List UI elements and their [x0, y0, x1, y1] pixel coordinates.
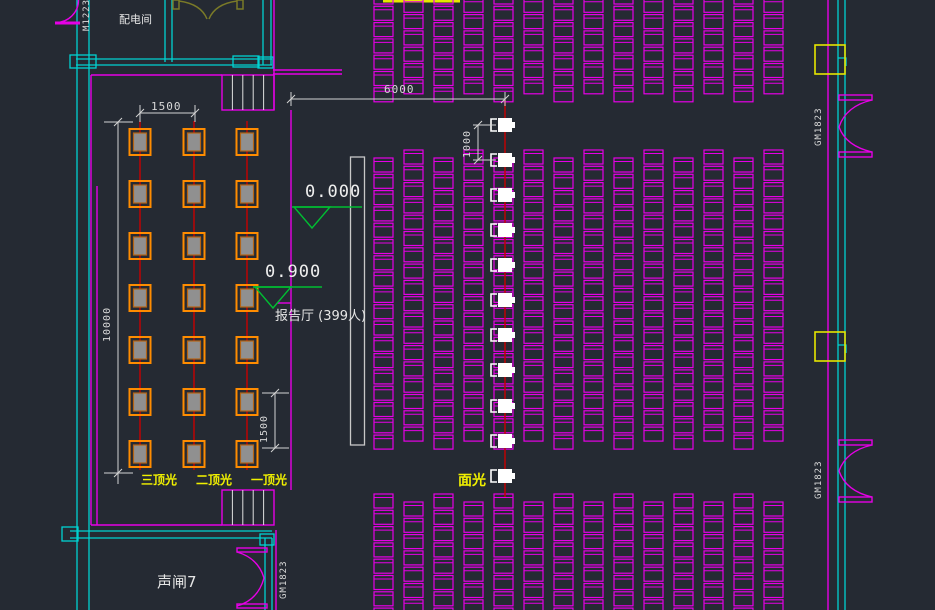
door-tag-gm1823-soundlock: GM1823 [280, 560, 289, 599]
top-light-1-label: 一顶光 [251, 474, 287, 486]
dim-6000: 6000 [384, 84, 415, 95]
sound-lock-label: 声闸7 [157, 575, 197, 590]
power-room-door [173, 0, 243, 19]
top-light-3-label: 三顶光 [141, 474, 177, 486]
stage-top-lights [130, 121, 258, 470]
elevation-markers [253, 207, 362, 308]
dim-1500-top: 1500 [151, 101, 182, 112]
front-light-label: 面光 [458, 474, 486, 488]
door-tag-gm1823-bottom: GM1823 [815, 460, 824, 499]
elevation-0000: 0.000 [305, 184, 361, 201]
elevation-0900: 0.900 [265, 264, 321, 281]
door-tag-gm1823-top: GM1823 [815, 107, 824, 146]
dim-1500-right: 1500 [260, 415, 270, 443]
dim-1000: 1000 [463, 130, 473, 158]
audience-seating [374, 0, 783, 610]
dim-10000: 10000 [103, 307, 113, 342]
hall-capacity-label: 报告厅 (399人) [275, 310, 366, 323]
top-light-2-label: 二顶光 [196, 474, 232, 486]
door-tag-m1223: M1223 [83, 0, 92, 31]
floor-plan-drawing [0, 0, 935, 610]
power-room-label: 配电间 [119, 14, 152, 25]
cad-canvas[interactable]: 配电间 M1223 1500 6000 1000 10000 1500 0.00… [0, 0, 935, 610]
walls [62, 0, 846, 610]
